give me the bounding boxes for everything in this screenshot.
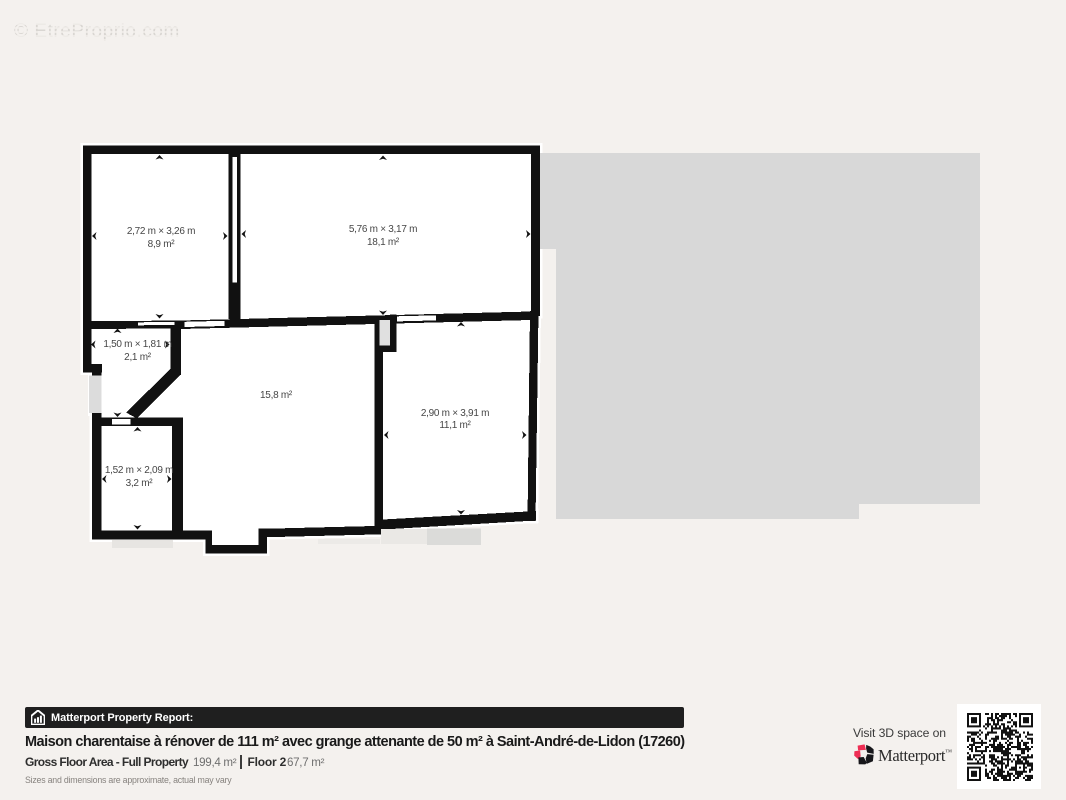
svg-text:15,8 m²: 15,8 m² — [260, 390, 293, 401]
svg-text:18,1 m²: 18,1 m² — [367, 237, 400, 248]
svg-text:1,52 m × 2,09 m: 1,52 m × 2,09 m — [105, 465, 173, 476]
svg-text:11,1 m²: 11,1 m² — [439, 420, 471, 431]
svg-text:5,76 m × 3,17 m: 5,76 m × 3,17 m — [349, 224, 417, 235]
svg-text:1,50 m × 1,81 m: 1,50 m × 1,81 m — [103, 339, 171, 350]
svg-text:8,9 m²: 8,9 m² — [148, 239, 176, 250]
svg-text:2,72 m × 3,26 m: 2,72 m × 3,26 m — [127, 226, 195, 237]
svg-text:3,2 m²: 3,2 m² — [126, 478, 154, 489]
svg-text:2,90 m × 3,91 m: 2,90 m × 3,91 m — [421, 408, 489, 419]
svg-text:2,1 m²: 2,1 m² — [124, 352, 152, 363]
